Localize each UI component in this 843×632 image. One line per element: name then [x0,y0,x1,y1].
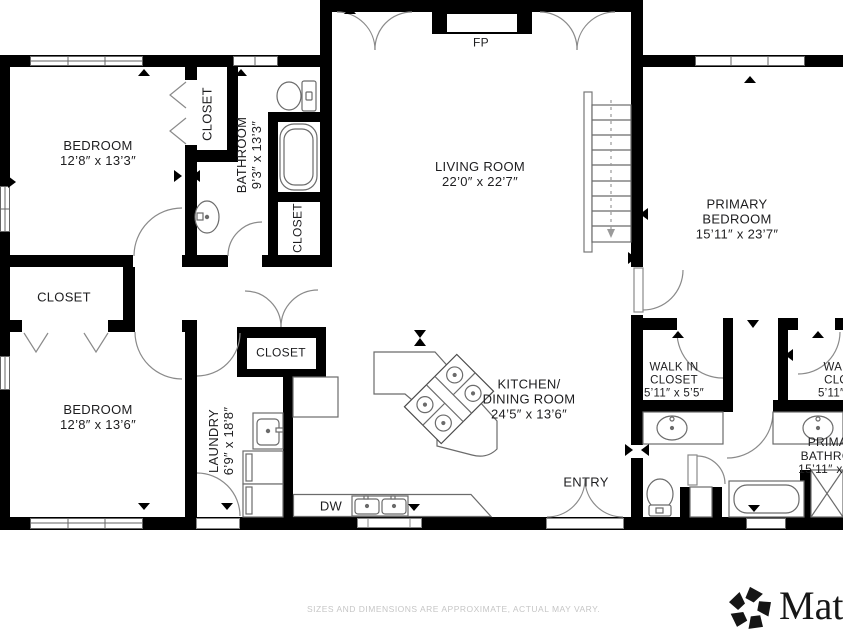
room-name: WALK IN [818,362,843,375]
room-name: CLOSET [37,290,91,305]
window-bottom-tub [747,519,786,529]
threshold-laundry-door [197,519,240,529]
dishwasher-label: DW [320,499,342,514]
room-dims: 5’11″ x 5’5″ [644,388,704,401]
bifold-closet-tl-a [170,82,186,108]
marker-arrow [812,331,824,338]
room-name: CLOSET [644,375,704,388]
room-name: BEDROOM [60,402,136,417]
room-label-living-room: LIVING ROOM 22’0″ x 22’7″ [435,159,525,189]
room-label-closet-middle: CLOSET [37,290,91,305]
marker-arrow [8,176,16,188]
floorplan-page: BEDROOM 12’8″ x 13’3″ CLOSET BATHROOM 9’… [0,0,843,632]
marker-arrow [174,170,182,182]
room-label-bedroom-top-left: BEDROOM 12’8″ x 13’3″ [60,138,136,168]
door-bathroom [228,222,262,256]
door-bath-closet [697,456,725,484]
room-name: DINING ROOM [483,392,576,407]
room-dims: 15’11″ x 7’11″ [798,463,843,477]
door-panel-primary-bedroom [634,268,643,312]
room-label-closet-bath: CLOSET [291,203,305,253]
bath-linen-closet [690,487,712,517]
room-label-walk-in-closet-1: WALK IN CLOSET 5’11″ x 5’5″ [644,362,704,401]
window-top-bath [234,56,278,66]
room-name: LAUNDRY [206,407,221,475]
room-label-kitchen-dining: KITCHEN/ DINING ROOM 24’5″ x 13’6″ [483,377,576,422]
room-name: BEDROOM [60,138,136,153]
door-laundry-top [197,333,240,376]
room-label-primary-bathroom: PRIMARY BATHROOM 15’11″ x 7’11″ [798,436,843,477]
room-dims: 12’8″ x 13’6″ [60,417,136,432]
french-door-left-b [375,12,412,50]
french-door-left-a [337,12,375,50]
room-name: BATHROOM [798,449,843,463]
room-name: LIVING ROOM [435,159,525,174]
door-primary-bathroom [727,412,773,458]
room-label-bathroom: BATHROOM 9’3″ x 13’3″ [234,117,264,194]
shower [811,470,843,517]
room-dims: 5’11″ x 5’5″ [818,388,843,401]
windows [0,56,805,529]
room-name: CLOSET [291,203,305,253]
room-name: PRIMARY [696,197,779,212]
floorplan-drawing [0,0,843,632]
window-bottom-left [30,518,143,529]
dryer [243,484,283,517]
door-panel-bath-closet [688,455,697,485]
walls [0,0,843,530]
room-dims: 12’8″ x 13’3″ [60,153,136,168]
window-left-lower [1,356,10,390]
firebox [447,14,517,32]
threshold-entry [547,519,624,529]
bifold-closet-mid-a [24,333,48,352]
marker-arrow [641,444,649,456]
room-dims: 15’11″ x 23’7″ [696,227,779,242]
vanity-left [643,412,723,444]
room-name: BATHROOM [234,117,249,194]
room-name: CLOSET [256,346,306,360]
door-bedroom-top-left [134,208,182,256]
room-dims: 24’5″ x 13’6″ [483,407,576,422]
toilet-primary [647,479,673,516]
kitchen-upper-cabinet [293,377,338,417]
bathtub-top-left [280,124,317,190]
room-name: DW [320,499,342,514]
room-label-closet-top-left: CLOSET [200,87,215,141]
window-top-primary [696,56,805,66]
window-left-upper [0,186,10,232]
marker-arrow [414,330,426,338]
toilet-top-left [277,81,316,111]
door-bedroom-bottom-left [135,332,182,379]
room-name: FP [473,36,489,51]
marker-arrow [414,338,426,346]
marker-arrow [744,76,756,83]
staircase [584,92,631,252]
room-dims: 6’9″ x 18’8″ [221,407,236,475]
door-kitchen-closet-left [245,291,281,327]
sink-top-left [195,201,219,233]
fireplace-label: FP [473,36,489,51]
matterport-logo-icon [727,586,773,632]
laundry-sink [253,413,283,449]
room-label-walk-in-closet-2: WALK IN CLOSET 5’11″ x 5’5″ [818,362,843,401]
marker-arrow [138,69,150,76]
disclaimer-text: SIZES AND DIMENSIONS ARE APPROXIMATE, AC… [307,604,600,614]
room-name: ENTRY [563,475,608,490]
marker-arrow [747,320,759,328]
room-label-closet-kitchen: CLOSET [256,346,306,360]
door-laundry-bottom [197,473,240,516]
room-name: BEDROOM [696,212,779,227]
window-top-left [30,56,143,66]
room-label-bedroom-bottom-left: BEDROOM 12’8″ x 13’6″ [60,402,136,432]
room-label-primary-bedroom: PRIMARY BEDROOM 15’11″ x 23’7″ [696,197,779,242]
french-door-right-a [540,12,577,50]
bifold-closet-tl-b [170,118,186,144]
threshold-kitchen-sink [358,518,422,528]
door-primary-bedroom [643,270,683,310]
marker-arrow [625,444,633,456]
kitchen-sink [352,496,408,516]
room-dims: 22’0″ x 22’7″ [435,174,525,189]
entry-label: ENTRY [563,475,608,490]
french-door-right-b [577,12,615,50]
room-name: WALK IN [644,362,704,375]
room-name: CLOSET [818,375,843,388]
room-label-laundry: LAUNDRY 6’9″ x 18’8″ [206,407,236,475]
room-dims: 9’3″ x 13’3″ [249,117,264,194]
door-kitchen-closet-right [281,290,318,327]
room-name: PRIMARY [798,436,843,450]
marker-arrow [672,331,684,338]
matterport-logo-text: Mat [779,582,843,629]
room-name: KITCHEN/ [483,377,576,392]
room-name: CLOSET [200,87,215,141]
marker-arrow [138,503,150,510]
washer [243,451,283,484]
bifold-closet-mid-b [84,333,108,352]
marker-arrow [221,503,233,510]
bathtub-primary [729,481,804,517]
